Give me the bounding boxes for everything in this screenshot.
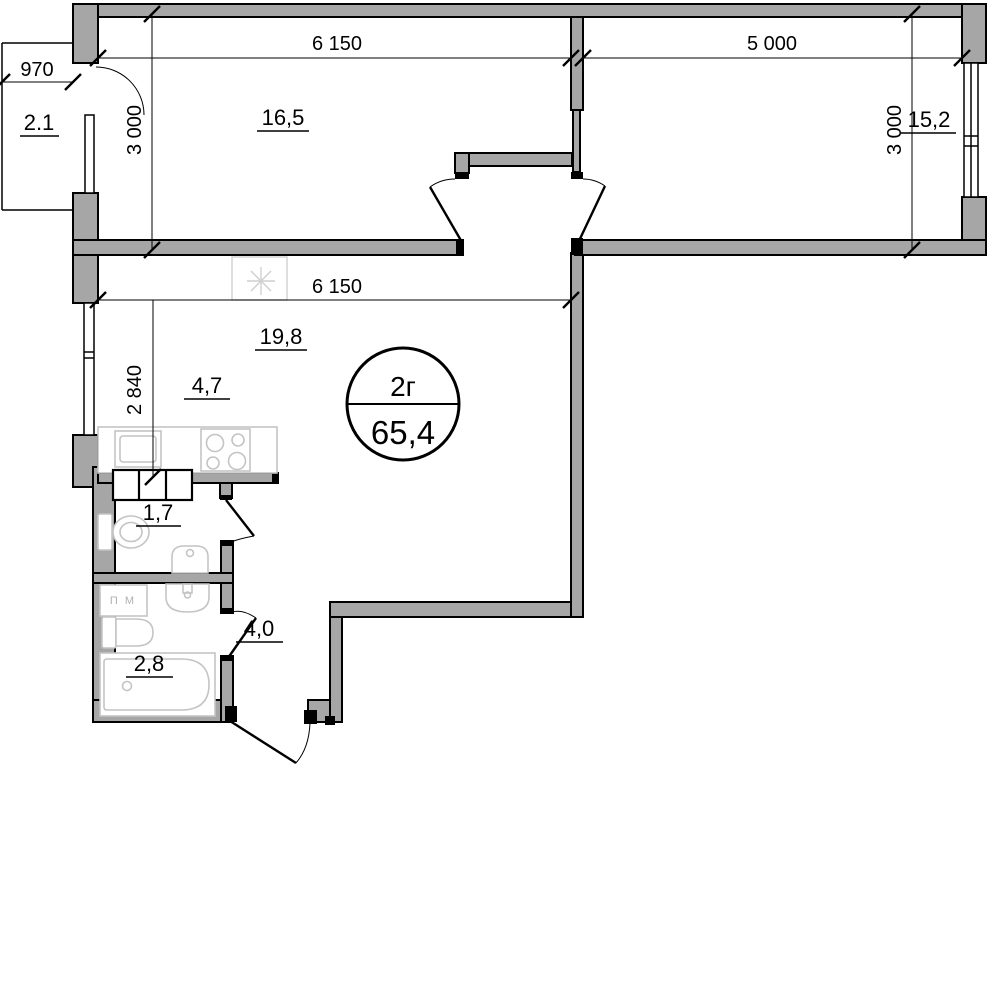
area-label-hallway: 4,0	[244, 616, 275, 641]
wc-door	[226, 500, 254, 545]
floor-plan-page: П М	[0, 0, 1000, 1000]
wc-toilet	[98, 514, 149, 550]
wc-sink	[172, 546, 208, 573]
dim-bedroom2-depth: 3 000	[884, 105, 906, 155]
floor-plan-drawing: П М	[0, 0, 1000, 1000]
area-label-bedroom2: 15,2	[908, 107, 951, 132]
bedroom2-door	[578, 179, 605, 243]
stamp-flat-type: 2г	[390, 371, 416, 402]
entry-door	[230, 721, 310, 763]
kitchen-window	[84, 303, 94, 435]
walls	[73, 4, 986, 725]
stamp-total-area: 65,4	[371, 414, 435, 451]
area-label-living-kitchen: 19,8	[260, 324, 303, 349]
area-label-balcony: 2.1	[24, 110, 55, 135]
bathroom-toilet	[102, 617, 153, 648]
area-label-kitchen-zone: 4,7	[192, 373, 223, 398]
balcony-door-sidelight-window	[85, 115, 94, 193]
dim-bedroom1-depth: 3 000	[124, 105, 146, 155]
vent-shaft-symbol	[232, 257, 287, 300]
area-label-bedroom1: 16,5	[262, 105, 305, 130]
bathroom-sink	[166, 584, 209, 612]
dim-living-width: 6 150	[312, 276, 362, 298]
bedroom1-door	[430, 179, 463, 244]
bathroom-fixtures: П М	[100, 584, 215, 716]
area-label-bathroom: 2,8	[134, 651, 165, 676]
area-labels: 2.1 16,5 15,2 19,8 4,7 1,7 2,8 4,0	[20, 105, 956, 677]
dim-bedroom1-width: 6 150	[312, 33, 362, 55]
area-label-wc: 1,7	[143, 500, 174, 525]
bedroom2-window	[964, 63, 978, 197]
dim-kitchen-depth: 2 840	[124, 365, 146, 415]
apartment-stamp: 2г 65,4	[347, 348, 459, 460]
dim-bedroom2-width: 5 000	[747, 33, 797, 55]
dim-balcony-width: 970	[20, 59, 53, 81]
washing-machine-label: П М	[110, 595, 136, 607]
